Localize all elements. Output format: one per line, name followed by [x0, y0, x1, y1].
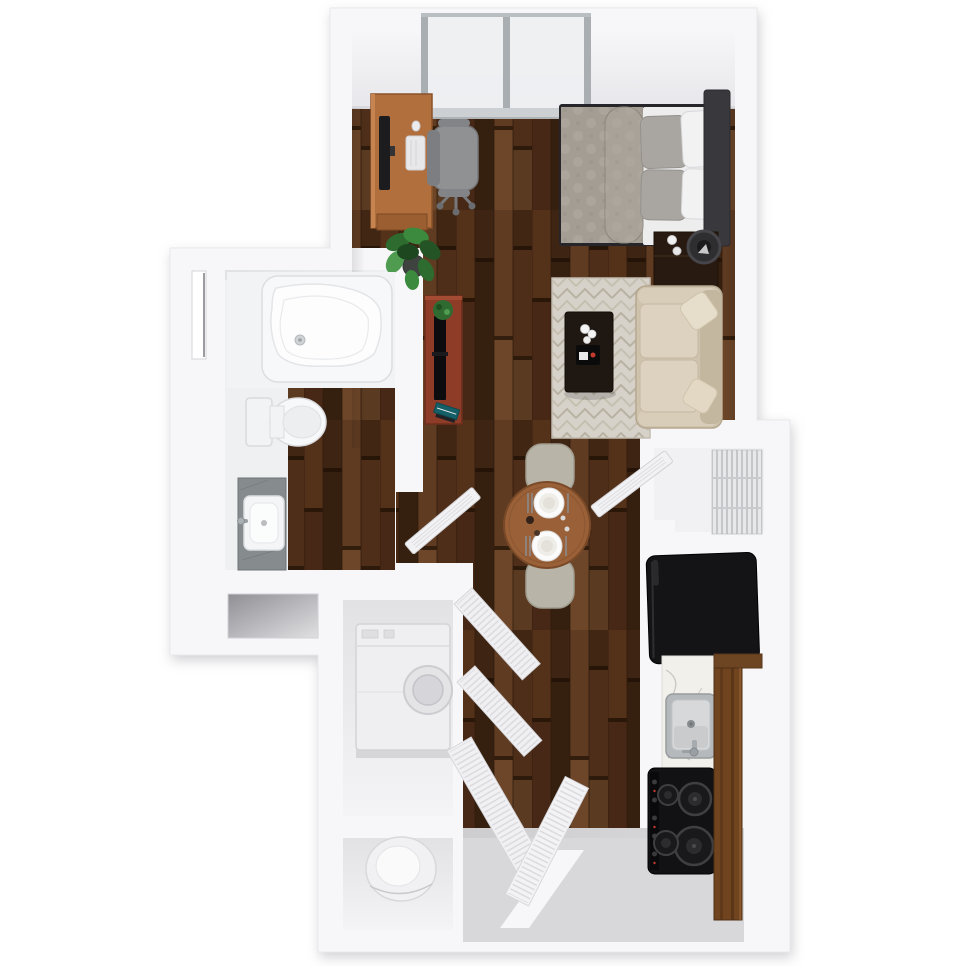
kitchen-counter	[662, 656, 718, 772]
kitchen-sink-drain-center	[690, 723, 693, 726]
monitor-stand	[390, 146, 395, 156]
coffee-table-decor-ball	[584, 337, 591, 344]
tv-stand-highlight	[425, 296, 462, 300]
water-heater	[366, 837, 436, 901]
washer-controls	[362, 630, 378, 638]
range-cooktop	[648, 768, 716, 874]
mouse	[412, 121, 420, 131]
table-decor-1	[526, 516, 534, 524]
salt-shaker	[561, 516, 566, 521]
nightstand-decor-2	[673, 247, 681, 255]
desk-shelf	[377, 214, 427, 230]
toilet	[246, 398, 326, 446]
refrigerator	[646, 552, 760, 664]
chair-armrest-top	[438, 119, 470, 127]
window-frame-middle	[503, 13, 510, 111]
washer-drum-inner	[413, 675, 443, 705]
wire-shelving-lines	[712, 450, 762, 534]
window-head-rail	[421, 13, 591, 17]
refrigerator-handle	[652, 560, 659, 586]
chair-backrest	[427, 130, 440, 186]
window	[414, 13, 598, 119]
bathtub-drain-center	[298, 338, 302, 342]
desk-edge-highlight	[371, 94, 375, 228]
bathroom-doorway-floor	[396, 492, 425, 563]
magazine	[579, 352, 588, 360]
kitchen-sink-basin-shade	[674, 726, 708, 748]
nightstand	[654, 231, 720, 286]
floor-plan-svg: 3D top-down floor plan rendering of a st…	[0, 0, 966, 966]
chair-armrest-bottom	[438, 189, 470, 197]
coffee-table	[564, 312, 616, 400]
pepper-shaker	[565, 527, 570, 532]
pillow-gray-2	[641, 170, 688, 221]
closet-bottom-wall	[664, 532, 766, 556]
water-heater-top	[376, 846, 420, 886]
tall-cabinet	[714, 668, 742, 920]
television	[434, 316, 446, 400]
bathtub	[227, 272, 395, 388]
toilet-tank	[246, 398, 272, 446]
vanity-drain	[261, 520, 267, 526]
desk	[371, 94, 432, 230]
washer-dryer	[356, 624, 452, 758]
magazine-red-dot	[591, 353, 596, 358]
bed	[559, 90, 730, 246]
bathroom-vanity	[238, 478, 287, 570]
floor-plan-image: 3D top-down floor plan rendering of a st…	[0, 0, 966, 966]
sofa	[636, 286, 722, 428]
window-frame-right	[584, 13, 591, 111]
duvet-fold-roll-pattern	[605, 107, 643, 243]
monitor	[379, 116, 390, 190]
television-stand-bar	[432, 352, 448, 356]
headboard	[704, 90, 730, 246]
toilet-seat-hinge	[270, 406, 284, 438]
cabinet-top-strip	[714, 654, 762, 668]
tv-stand-plant-leaf	[444, 309, 450, 315]
vanity-faucet-handle	[238, 518, 245, 525]
nightstand-decor-1	[668, 236, 677, 245]
tv-stand	[425, 296, 462, 424]
washer-controls	[384, 630, 394, 638]
toilet-seat	[283, 406, 321, 438]
kitchen-faucet-base	[690, 748, 698, 756]
tv-stand-plant-leaf	[436, 304, 442, 310]
tv-stand-plant	[433, 300, 453, 320]
table-decor-2	[534, 530, 540, 536]
niche	[228, 594, 318, 638]
